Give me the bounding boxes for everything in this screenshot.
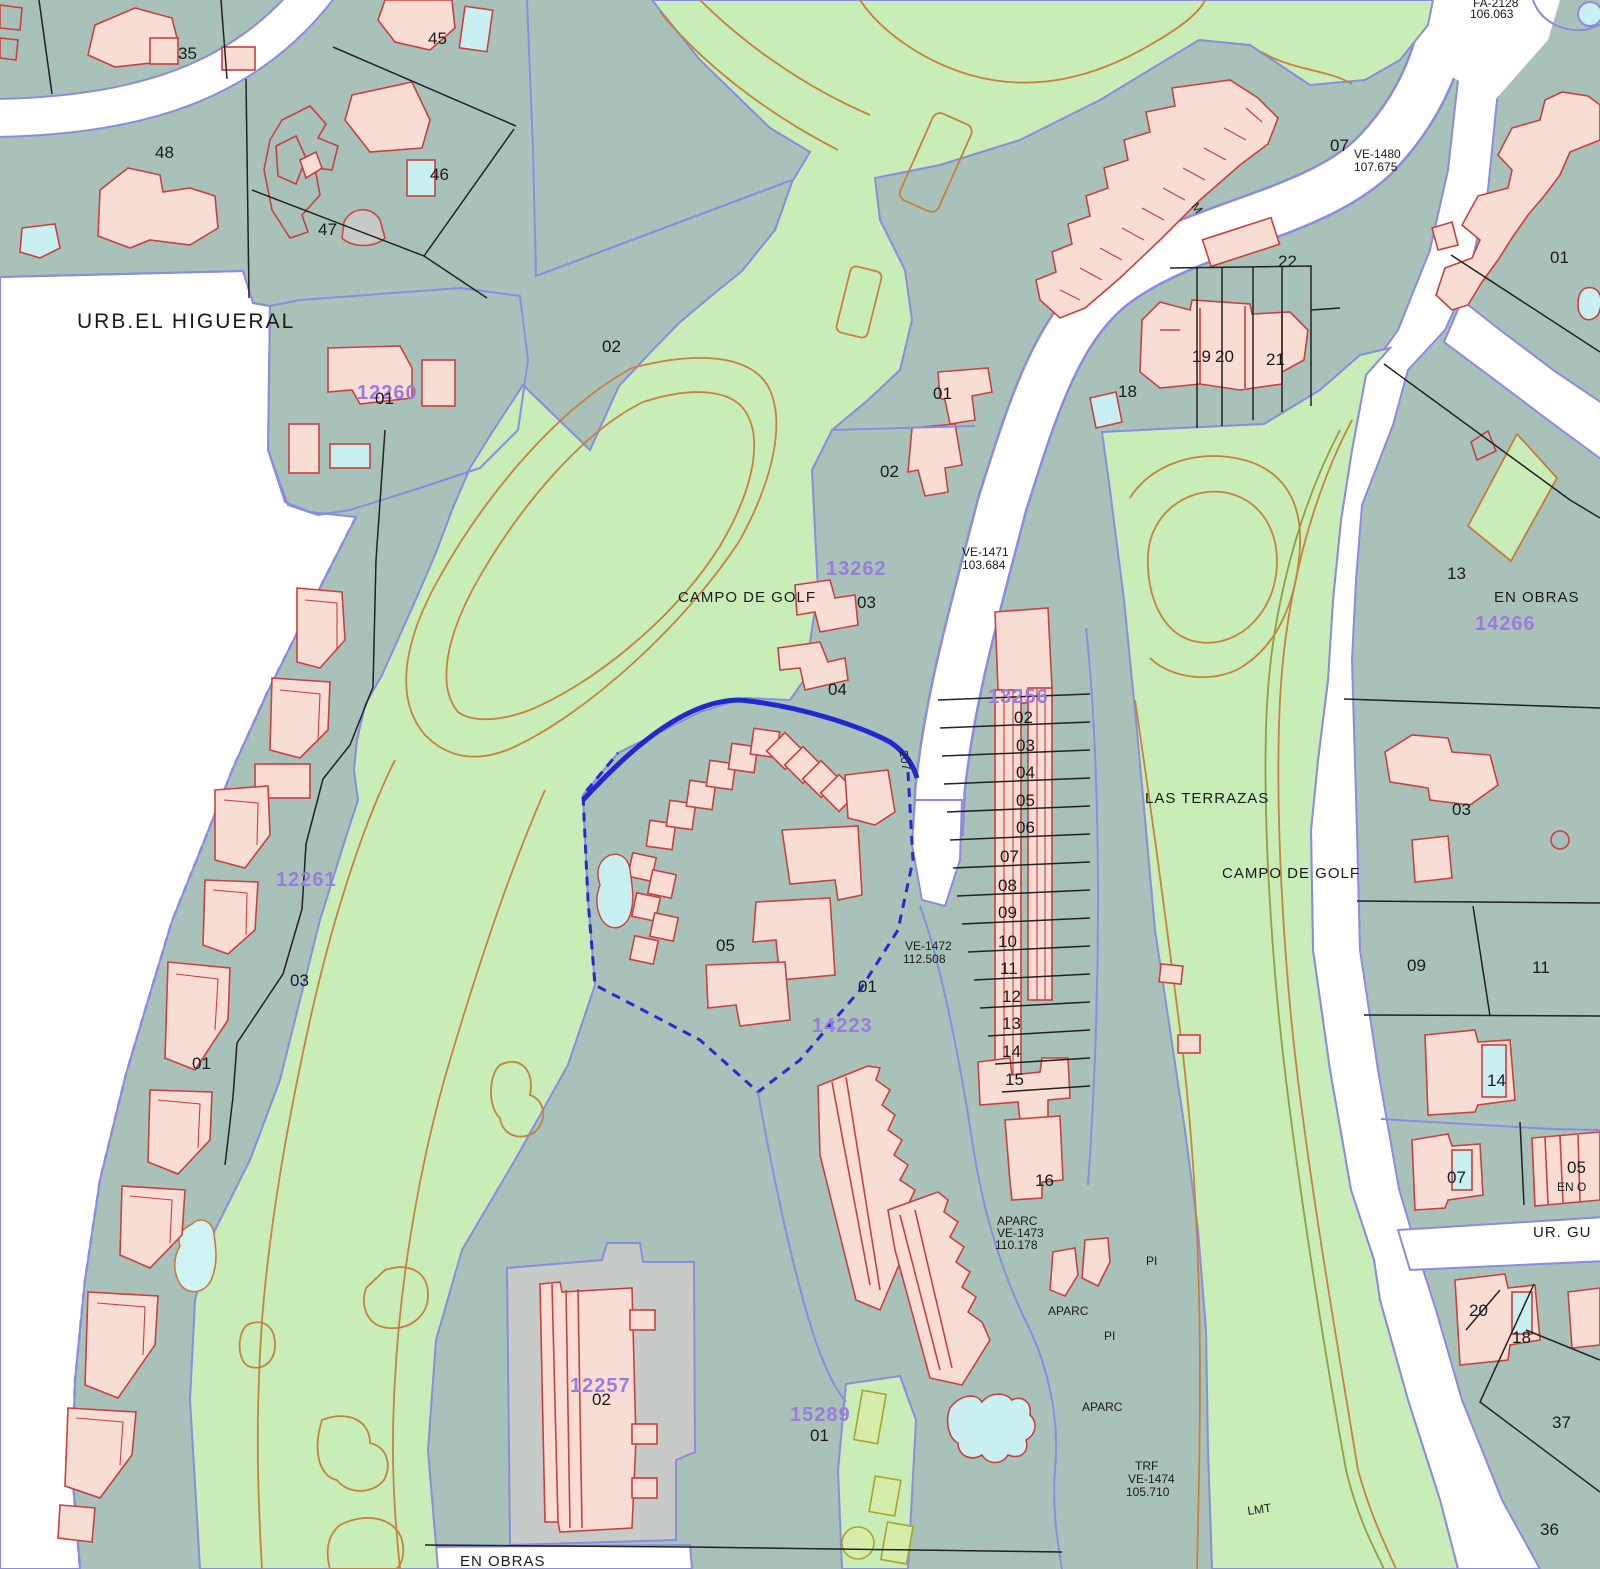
svg-text:15: 15	[1005, 1070, 1024, 1089]
svg-text:VE-1480: VE-1480	[1354, 147, 1401, 161]
svg-text:01: 01	[858, 977, 877, 996]
svg-text:10: 10	[998, 932, 1017, 951]
svg-text:UR. GU: UR. GU	[1533, 1224, 1592, 1241]
svg-text:TRF: TRF	[1135, 1459, 1158, 1473]
svg-text:105.710: 105.710	[1126, 1485, 1170, 1499]
svg-text:07: 07	[1447, 1168, 1466, 1187]
svg-text:20: 20	[1469, 1301, 1488, 1320]
svg-text:02: 02	[592, 1390, 611, 1409]
svg-text:02: 02	[602, 337, 621, 356]
svg-text:112.508: 112.508	[903, 952, 946, 966]
svg-text:20: 20	[1215, 347, 1234, 366]
svg-text:12: 12	[1002, 987, 1021, 1006]
svg-text:110.178: 110.178	[995, 1238, 1038, 1252]
svg-text:05: 05	[1016, 791, 1035, 810]
svg-text:CAMPO DE GOLF: CAMPO DE GOLF	[1222, 865, 1360, 882]
svg-text:04: 04	[828, 680, 847, 699]
svg-text:05: 05	[716, 936, 735, 955]
svg-text:48: 48	[155, 143, 174, 162]
svg-text:09: 09	[1407, 956, 1426, 975]
svg-text:05: 05	[1567, 1158, 1586, 1177]
svg-text:11: 11	[1532, 958, 1550, 977]
svg-text:45: 45	[428, 29, 447, 48]
svg-text:11: 11	[1000, 959, 1018, 978]
svg-text:47: 47	[318, 220, 337, 239]
svg-text:01: 01	[810, 1426, 829, 1445]
svg-text:21: 21	[1266, 350, 1285, 369]
svg-text:VE-1471: VE-1471	[962, 545, 1009, 559]
svg-text:07: 07	[1330, 136, 1349, 155]
svg-text:46: 46	[430, 165, 449, 184]
svg-text:URB.EL HIGUERAL: URB.EL HIGUERAL	[77, 310, 295, 333]
svg-text:35: 35	[178, 44, 197, 63]
svg-text:03: 03	[1016, 736, 1035, 755]
svg-text:36: 36	[1540, 1520, 1559, 1539]
svg-text:EN OBRAS: EN OBRAS	[460, 1553, 546, 1569]
svg-text:07: 07	[1000, 847, 1019, 866]
svg-text:16: 16	[1035, 1171, 1054, 1190]
svg-text:01: 01	[1550, 248, 1569, 267]
svg-text:VE-1472: VE-1472	[905, 939, 952, 953]
svg-text:14266: 14266	[1475, 613, 1536, 635]
svg-text:02: 02	[1014, 708, 1033, 727]
svg-text:EN O: EN O	[1557, 1180, 1586, 1194]
svg-text:01: 01	[375, 389, 394, 408]
svg-text:13256: 13256	[988, 686, 1049, 708]
svg-text:13: 13	[1002, 1014, 1021, 1033]
svg-text:15289: 15289	[790, 1404, 851, 1426]
svg-text:04: 04	[1016, 763, 1035, 782]
svg-text:08: 08	[998, 876, 1017, 895]
svg-text:CAMPO DE GOLF: CAMPO DE GOLF	[678, 589, 816, 606]
svg-text:13: 13	[1447, 564, 1466, 583]
svg-text:VE-1474: VE-1474	[1128, 1472, 1175, 1486]
svg-text:01: 01	[192, 1054, 211, 1073]
svg-text:13262: 13262	[826, 558, 887, 580]
svg-text:18: 18	[1118, 382, 1137, 401]
svg-text:LAS TERRAZAS: LAS TERRAZAS	[1145, 790, 1269, 807]
svg-text:14: 14	[1487, 1071, 1506, 1090]
svg-text:06: 06	[1016, 818, 1035, 837]
svg-text:03: 03	[857, 593, 876, 612]
svg-text:106.063: 106.063	[1470, 7, 1514, 21]
svg-text:01: 01	[933, 384, 952, 403]
svg-text:107.675: 107.675	[1354, 160, 1398, 174]
svg-text:19: 19	[1192, 347, 1211, 366]
svg-text:PI: PI	[1104, 1329, 1115, 1343]
svg-text:PI: PI	[1146, 1254, 1157, 1268]
svg-text:03: 03	[290, 971, 309, 990]
svg-text:37: 37	[1552, 1413, 1571, 1432]
svg-text:103.684: 103.684	[962, 558, 1006, 572]
svg-text:18: 18	[1512, 1328, 1531, 1347]
svg-text:02: 02	[880, 462, 899, 481]
svg-text:APARC: APARC	[1048, 1304, 1089, 1318]
svg-text:14: 14	[1002, 1042, 1021, 1061]
svg-text:14223: 14223	[812, 1015, 873, 1037]
svg-text:09: 09	[998, 903, 1017, 922]
svg-text:APARC: APARC	[1082, 1400, 1123, 1414]
svg-text:12261: 12261	[276, 869, 337, 891]
svg-text:03: 03	[1452, 800, 1471, 819]
svg-text:22: 22	[1278, 252, 1297, 271]
svg-text:EN OBRAS: EN OBRAS	[1494, 589, 1580, 606]
